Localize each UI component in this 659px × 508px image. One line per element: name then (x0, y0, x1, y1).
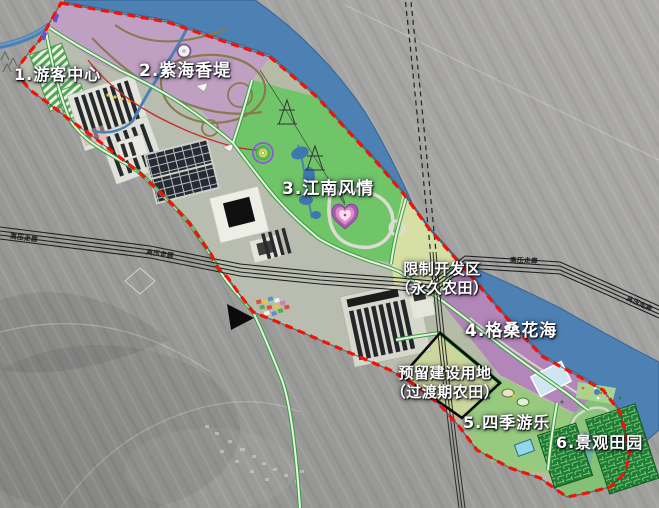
power-corridor-label: 高压走廊 (510, 255, 538, 265)
zone-1-label: 1.游客中心 (14, 61, 101, 85)
zone-4-label: 4.格桑花海 (465, 316, 557, 341)
rainbow-spiral-feature (253, 143, 273, 163)
restricted-area-line2: （永久农田） (383, 279, 501, 298)
zone-3-label: 3.江南风情 (282, 174, 374, 199)
zone-5-label: 5.四季游乐 (463, 409, 550, 433)
kart-track-icon (517, 398, 529, 406)
zone-2-label: 2.紫海香堤 (139, 56, 231, 81)
master-plan-map: 高压走廊 高压走廊 高压走廊 高压走廊 1.游客中心 2.紫海香堤 3.江南风情… (0, 0, 659, 508)
restricted-area-line1: 限制开发区 (383, 260, 501, 279)
small-pond (594, 389, 600, 395)
reserved-area-label: 预留建设用地 （过渡期农田） (380, 364, 510, 402)
restricted-area-label: 限制开发区 （永久农田） (383, 260, 501, 298)
zone-6-label: 6.景观田园 (556, 429, 643, 453)
reserved-area-line1: 预留建设用地 (380, 364, 510, 383)
reserved-area-line2: （过渡期农田） (380, 383, 510, 402)
